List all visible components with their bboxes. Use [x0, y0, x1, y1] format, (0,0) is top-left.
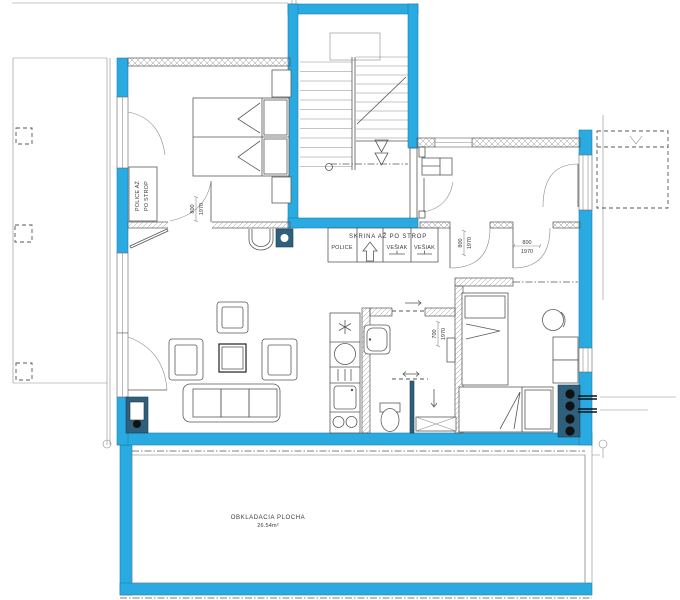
right-terrace-dashed: [597, 131, 668, 208]
slide-arrow-icon: [403, 372, 419, 377]
desk-area: [249, 229, 293, 250]
double-bed: [193, 70, 291, 203]
fireplace: [126, 397, 148, 433]
stairwell: [288, 4, 453, 228]
cabinet-2: [553, 360, 578, 383]
balcony-door-arc: [128, 112, 165, 155]
vent-mark: [630, 136, 642, 144]
svg-text:800: 800: [458, 238, 464, 247]
armchair-right: [262, 339, 297, 380]
balcony-marker-3: [16, 363, 32, 380]
living-room: [126, 302, 297, 433]
wardrobe-hanger1-label: VEŠIAK: [386, 244, 407, 251]
svg-text:1970: 1970: [441, 328, 447, 340]
nightstand-1: [272, 70, 291, 97]
window-left-3: [117, 333, 128, 397]
floor-plan: OBKLADACIA PLOCHA 26.54m²: [0, 0, 680, 600]
dim-hall-door-a: 800 1970: [458, 230, 473, 256]
terrace-door: [543, 164, 578, 207]
hall-doors: 800 1970 800 1970: [450, 228, 550, 268]
down-arrow-icon: [431, 389, 437, 407]
window-right-2: [579, 348, 592, 372]
svg-text:1970: 1970: [467, 237, 473, 249]
window-top: [435, 138, 472, 147]
shelf-unit-label-2: PO STROP: [144, 181, 150, 211]
svg-text:1970: 1970: [521, 249, 533, 255]
grid-marker-right: [599, 440, 607, 448]
balcony-marker-1: [16, 128, 32, 144]
kitchen: [330, 313, 360, 433]
hall-door-b: [513, 228, 550, 268]
washbasin: [364, 325, 390, 354]
right-arrow-icon: [405, 301, 421, 306]
dim-bedroom-door: 800 1970: [190, 196, 205, 222]
window-right-1: [579, 155, 592, 210]
terrace: OBKLADACIA PLOCHA 26.54m²: [120, 445, 592, 598]
single-bed-vertical: [462, 293, 508, 385]
wardrobe: SKRINA AŽ PO STROP POLICE VEŠIAK VEŠIAK: [328, 228, 438, 262]
cabinet-1: [553, 337, 578, 360]
terrace-area-label: OBKLADACIA PLOCHA: [231, 515, 306, 521]
pillow-1: [264, 100, 287, 135]
pillow: [465, 296, 505, 318]
sofa: [183, 384, 280, 422]
svg-text:800: 800: [522, 240, 531, 246]
living-door-arc: [128, 337, 167, 390]
utility-risers: [558, 385, 676, 437]
bedroom-2: [459, 293, 676, 437]
window-left-2: [117, 253, 128, 333]
coffee-table: [219, 344, 246, 372]
shower: [392, 372, 456, 434]
wardrobe-title: SKRINA AŽ PO STROP: [349, 232, 427, 240]
svg-text:800: 800: [190, 204, 196, 213]
wall-top: [128, 58, 290, 66]
svg-text:700: 700: [432, 329, 438, 338]
bedroom-1: POLICE AŽ PO STROP 800 1970: [128, 58, 291, 248]
shelf-unit: POLICE AŽ PO STROP: [129, 167, 157, 221]
armchair-top: [217, 302, 248, 333]
towel-radiator: [447, 338, 455, 362]
shelf-unit-label-1: POLICE AŽ: [133, 180, 141, 211]
window-left-1: [117, 97, 128, 168]
armchair-left: [169, 339, 203, 380]
chair: [543, 310, 566, 331]
floor-plan-drawing: OBKLADACIA PLOCHA 26.54m²: [0, 0, 680, 600]
pillow-2: [264, 139, 287, 174]
wall-shelf: [422, 158, 452, 175]
toilet: [380, 403, 400, 432]
wardrobe-hanger2-label: VEŠIAK: [414, 244, 435, 251]
svg-text:1970: 1970: [199, 203, 205, 215]
terrace-area-value: 26.54m²: [257, 523, 279, 529]
dim-hall-door-b: 800 1970: [513, 240, 541, 255]
pillow: [525, 390, 551, 429]
hall-room: [417, 138, 580, 228]
nightstand-2: [272, 177, 291, 203]
dim-bathroom-door: 700 1970: [432, 321, 447, 347]
stairwell-door: [424, 178, 453, 212]
balcony-marker-2: [15, 225, 32, 242]
wardrobe-shelves-label: POLICE: [331, 245, 353, 251]
single-bed-horizontal: [459, 387, 553, 432]
